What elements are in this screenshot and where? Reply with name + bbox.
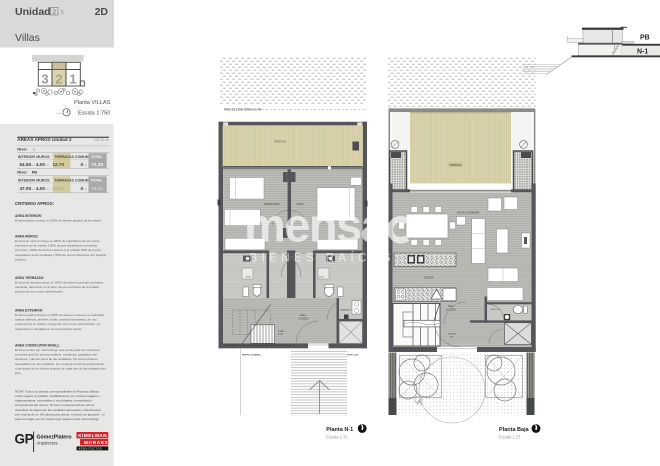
svg-text:71.20: 71.20: [92, 162, 104, 167]
svg-text:MORAES: MORAES: [84, 440, 108, 445]
svg-text:(patios abiertos, jardines, fo: (patios abiertos, jardines, fosas, quint…: [15, 318, 97, 322]
svg-text:NOTA: Todos los planos corresp: NOTA: Todos los planos correspondientes …: [15, 390, 99, 394]
svg-text:m²: m²: [46, 187, 50, 191]
svg-text:linderos.: linderos.: [15, 257, 27, 261]
svg-text:COMUN: COMUN: [75, 178, 89, 182]
svg-text:RETIRO LATERAL: RETIRO LATERAL: [242, 354, 262, 357]
svg-text:COMUN: COMUN: [75, 155, 89, 159]
svg-text:INTERIOR: INTERIOR: [18, 155, 36, 159]
svg-text:ÁREAS APROX Unidad 2: ÁREAS APROX Unidad 2: [17, 136, 72, 142]
svg-text:Planta N-1: Planta N-1: [326, 427, 353, 433]
svg-text:ACCESO: ACCESO: [299, 318, 309, 321]
svg-text:Escala 1:75: Escala 1:75: [499, 435, 521, 440]
svg-text:m²: m²: [32, 187, 36, 191]
svg-text:A PB: A PB: [278, 333, 283, 336]
svg-text:74.30: 74.30: [92, 186, 104, 191]
svg-text:3: 3: [41, 72, 48, 87]
svg-text:23.30: 23.30: [53, 186, 65, 191]
svg-text:m²: m²: [32, 163, 36, 167]
svg-text:m²: m²: [46, 163, 50, 167]
svg-text:piso.: piso.: [15, 371, 22, 375]
svg-text:El área de muros incluye el 10: El área de muros incluye el 100% de supe…: [15, 239, 100, 243]
svg-text:mensa: mensa: [244, 199, 388, 252]
svg-text:Unidad: Unidad: [15, 6, 51, 18]
svg-text:El área común por nivel incluy: El área común por nivel incluye una cuot…: [15, 348, 100, 352]
svg-text:separativos entre unidades y 5: separativos entre unidades y 50% de muro…: [15, 253, 106, 257]
svg-text:MUROS: MUROS: [36, 155, 50, 159]
svg-text:comunes, 100% de ductos intern: comunes, 100% de ductos internos a la un…: [15, 248, 101, 252]
svg-text:2: 2: [52, 9, 56, 16]
svg-text:ESTAR / COMEDOR: ESTAR / COMEDOR: [457, 212, 480, 215]
svg-text:SUBE A: SUBE A: [448, 333, 456, 336]
svg-text:-1: -1: [32, 146, 35, 151]
svg-text:TERRAZAS: TERRAZAS: [54, 155, 74, 159]
svg-text:TOILETTE: TOILETTE: [490, 309, 500, 311]
svg-text:(terrazas, balcones) en el pis: (terrazas, balcones) en el piso, de uso …: [15, 285, 99, 289]
svg-text:RETIRO LAT.: RETIRO LAT.: [345, 354, 359, 357]
svg-text:Arquitectos: Arquitectos: [37, 441, 58, 446]
svg-text:El área de terraza incluye el: El área de terraza incluye el 100% de bi…: [15, 281, 104, 285]
svg-text:TOTAL: TOTAL: [91, 155, 103, 159]
svg-text:PB: PB: [32, 170, 38, 175]
svg-text:MUROS: MUROS: [36, 178, 50, 182]
svg-text:2: 2: [55, 72, 62, 87]
svg-text:ARQUITECTOS: ARQUITECTOS: [79, 448, 103, 451]
svg-text:Planta Baja: Planta Baja: [499, 427, 530, 433]
svg-text:4.00: 4.00: [36, 186, 45, 191]
svg-text:DCH: DCH: [319, 277, 324, 279]
svg-text:2D: 2D: [95, 6, 109, 18]
svg-text:Norte: Norte: [57, 112, 63, 115]
svg-text:área a la baja- por los metros: área a la baja- por los metros que quede…: [15, 417, 99, 421]
svg-text:PROYECCIÓN TERRAZA PB: PROYECCIÓN TERRAZA PB: [224, 107, 262, 112]
svg-text:ascensor y ductos fuera de las: ascensor y ductos fuera de las unidades)…: [15, 357, 98, 361]
svg-text:exclusivo de la unidad, incluy: exclusivo de la unidad, incluyendo sus m…: [15, 322, 100, 326]
svg-text:referencia es otorgada en la s: referencia es otorgada en la suma total …: [15, 327, 83, 331]
svg-text:N-1: N-1: [637, 49, 648, 56]
svg-text:TERRAZAS: TERRAZAS: [54, 178, 74, 182]
svg-text:m²: m²: [84, 163, 88, 167]
svg-text:4.00: 4.00: [36, 162, 45, 167]
svg-text:47.00: 47.00: [20, 186, 32, 191]
svg-text:BIENES RAÍCES: BIENES RAÍCES: [250, 252, 395, 265]
svg-text:AREA EXTERIOR:: AREA EXTERIOR:: [15, 309, 43, 313]
svg-text:El área exterior incluye el 10: El área exterior incluye el 100% de bien…: [15, 313, 104, 317]
svg-text:incluyendo sus muros perimetra: incluyendo sus muros perimetrales.: [15, 290, 64, 294]
svg-text:SUBE: SUBE: [278, 331, 284, 333]
svg-text:54.50: 54.50: [20, 162, 32, 167]
svg-text:COCINA: COCINA: [424, 277, 434, 280]
svg-text:LAVADERO: LAVADERO: [340, 309, 351, 312]
svg-text:El área interior incluye el 10: El área interior incluye el 100% de bien…: [15, 219, 102, 223]
svg-text:Escala 1:750: Escala 1:750: [78, 111, 110, 117]
svg-text:TERRAZA: TERRAZA: [449, 163, 461, 167]
svg-text:CRITERIO APROX:: CRITERIO APROX:: [15, 201, 55, 206]
svg-text:por encima de un 3% dicha para: por encima de un 3% dicha para cliente, …: [15, 412, 105, 416]
svg-text:TERRAZA: TERRAZA: [274, 140, 286, 144]
svg-text:Planta VILLAS: Planta VILLAS: [74, 100, 111, 106]
svg-text:Nivel: Nivel: [17, 170, 26, 175]
svg-text:AREA MUROS:: AREA MUROS:: [15, 235, 39, 239]
svg-text:INTERIOR: INTERIOR: [18, 178, 36, 182]
svg-text:Escala 1:75: Escala 1:75: [326, 435, 348, 440]
svg-text:TOTAL: TOTAL: [91, 178, 103, 182]
svg-text:DCH: DCH: [246, 277, 251, 279]
svg-text:ACCESO: ACCESO: [446, 309, 456, 312]
svg-text:están sujetos a posibles modif: están sujetos a posibles modificaciones …: [15, 394, 100, 398]
svg-text:12.70: 12.70: [53, 162, 65, 167]
svg-text:conveniencia del mismo. Si com: conveniencia del mismo. Si como consecue…: [15, 403, 94, 407]
svg-text:KIMELMAN: KIMELMAN: [78, 433, 107, 438]
svg-text:Villas: Villas: [15, 32, 40, 44]
svg-text:superficie de alguna de las un: superficie de alguna de las unidades aum…: [15, 408, 101, 412]
svg-text:comunes del piso (incluye pall: comunes del piso (incluye palliers, esca…: [15, 353, 97, 357]
svg-text:GP: GP: [15, 432, 34, 447]
svg-text:exteriores de la unidad, 100%: exteriores de la unidad, 100% ductos sep…: [15, 244, 97, 248]
svg-text:separables con las unidades. S: separables con las unidades. Se computa …: [15, 362, 104, 366]
svg-text:reglamentarias, razonables o m: reglamentarias, razonables o municipales…: [15, 399, 92, 403]
svg-text:PB: PB: [640, 35, 650, 42]
svg-text:m²: m²: [84, 187, 88, 191]
svg-text:a las áreas de los bienes prop: a las áreas de los bienes propios de cad…: [15, 366, 106, 370]
svg-text:1: 1: [69, 72, 76, 87]
svg-text:Nivel: Nivel: [17, 146, 26, 151]
svg-text:AREA TERRAZAS:: AREA TERRAZAS:: [15, 276, 44, 280]
svg-text:AREA INTERIOR:: AREA INTERIOR:: [15, 214, 42, 218]
svg-text:AREA COMÚN (POR NIVEL):: AREA COMÚN (POR NIVEL):: [15, 343, 60, 348]
svg-text:106.36 m²: 106.36 m²: [94, 138, 110, 142]
